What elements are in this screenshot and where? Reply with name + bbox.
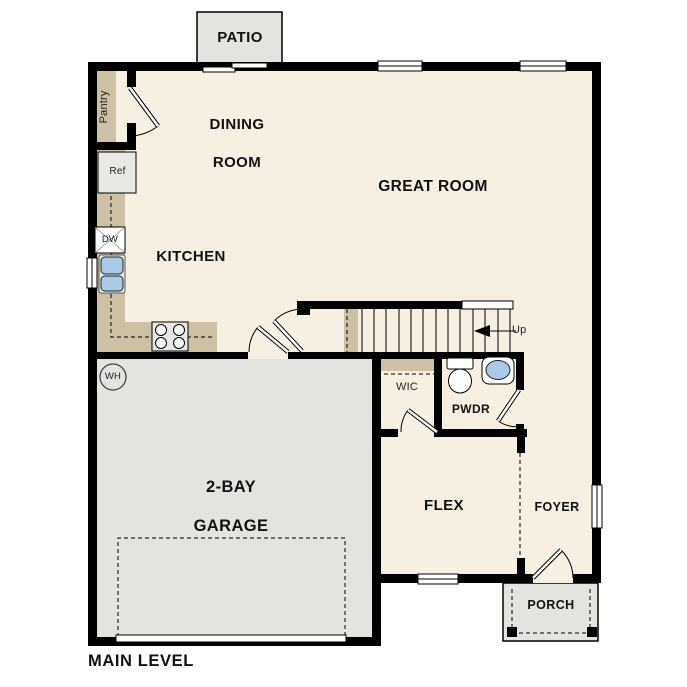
foyer-stub-upper [517,437,525,453]
room-label-kitchen: KITCHEN [150,248,232,267]
fixture-label-dw: DW [96,234,124,246]
stair-railing [462,301,513,309]
porch-post-right [587,627,597,637]
stove [152,322,188,351]
floor-plan: PATIO Pantry DINING ROOM GREAT ROOM Ref … [0,0,687,687]
front-door-opening [533,574,573,583]
pantry-south-wall [88,142,136,150]
pantry-wall-upper [127,71,136,87]
room-label-dining: DINING ROOM [182,116,292,172]
garage-overhead-door [116,635,346,642]
room-label-wic: WIC [391,381,423,395]
fixture-label-ref: Ref [100,166,135,179]
room-label-pantry: Pantry [98,77,112,137]
room-label-porch: PORCH [520,598,582,614]
room-label-pwdr: PWDR [446,402,496,417]
garage-door-opening [248,352,288,359]
foyer-stub-lower [517,558,525,575]
kitchen-sink [99,255,125,293]
wic-shelf [375,359,438,371]
stair-direction-label: Up [512,324,542,338]
stair-wall-stub [297,309,310,315]
toilet [447,358,473,393]
porch-post-left [507,627,517,637]
flex-north-wall-left [372,429,398,437]
room-label-patio: PATIO [197,29,283,48]
room-label-flex: FLEX [414,497,474,516]
pwdr-east-wall-upper [516,359,524,390]
room-label-great-room: GREAT ROOM [360,177,506,196]
stair-north-wall [297,301,462,309]
flex-north-wall-right [434,429,527,437]
room-label-foyer: FOYER [528,500,586,516]
stair-base-wall [344,308,358,352]
fixture-label-wh: WH [99,371,127,383]
wic-pwdr-divider [434,359,442,430]
page-title: MAIN LEVEL [88,651,228,672]
vanity-sink [482,357,514,384]
garage-east-wall [372,352,381,646]
room-label-garage: 2-BAY GARAGE [171,478,291,537]
